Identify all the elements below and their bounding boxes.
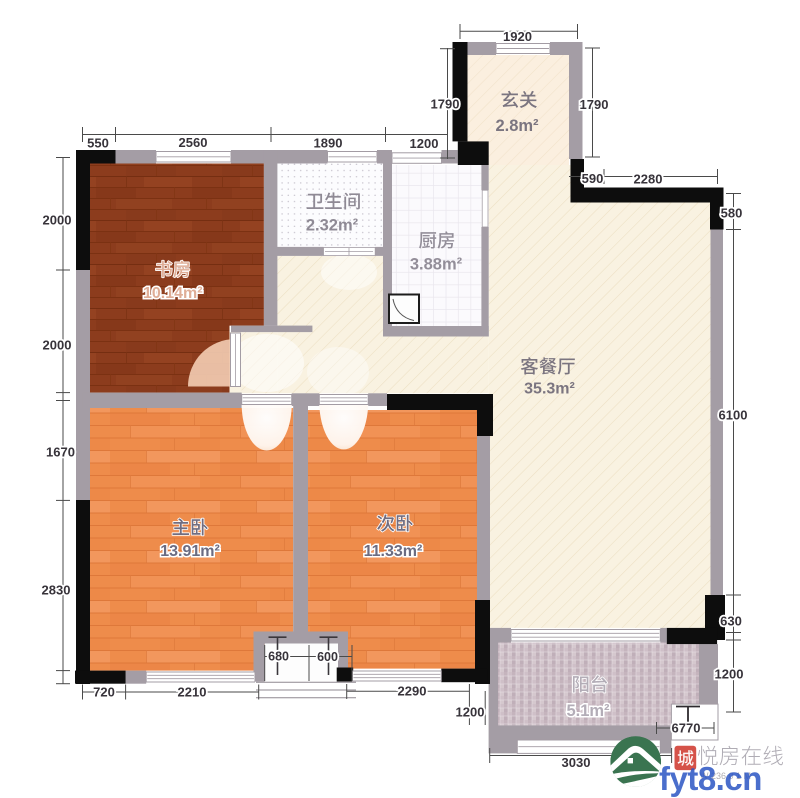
svg-text:590: 590 [582,171,604,186]
svg-text:1890: 1890 [314,136,343,151]
svg-text:2290: 2290 [398,684,427,699]
svg-text:580: 580 [721,206,743,221]
svg-text:1790: 1790 [580,97,609,112]
svg-text:2.32m²: 2.32m² [306,217,359,235]
svg-text:2000: 2000 [43,213,72,228]
svg-text:1200: 1200 [715,667,744,682]
svg-text:2210: 2210 [178,685,207,700]
svg-text:550: 550 [87,136,109,151]
svg-text:680: 680 [268,650,289,664]
svg-text:1200: 1200 [456,705,485,720]
svg-text:13.91m²: 13.91m² [160,543,220,560]
svg-text:6770: 6770 [672,721,701,736]
svg-text:5.1m²: 5.1m² [566,702,610,720]
svg-text:2.8m²: 2.8m² [495,117,539,135]
svg-text:6100: 6100 [719,408,748,423]
svg-text:2830: 2830 [42,583,71,598]
svg-text:1790: 1790 [431,97,460,112]
svg-text:fyt8.cn: fyt8.cn [659,760,762,797]
svg-text:11.33m²: 11.33m² [364,543,423,560]
svg-text:600: 600 [317,650,338,664]
svg-text:2000: 2000 [43,338,72,353]
svg-text:630: 630 [720,614,742,629]
svg-text:3.88m²: 3.88m² [410,256,463,274]
svg-text:35.3m²: 35.3m² [524,381,575,398]
svg-text:2560: 2560 [179,135,208,150]
svg-text:3030: 3030 [562,755,591,770]
svg-text:1200: 1200 [410,136,439,151]
svg-text:1670: 1670 [46,445,75,460]
svg-text:1920: 1920 [503,29,532,44]
svg-text:720: 720 [93,685,115,700]
svg-text:2280: 2280 [634,172,663,187]
svg-text:10.14m²: 10.14m² [143,285,203,302]
